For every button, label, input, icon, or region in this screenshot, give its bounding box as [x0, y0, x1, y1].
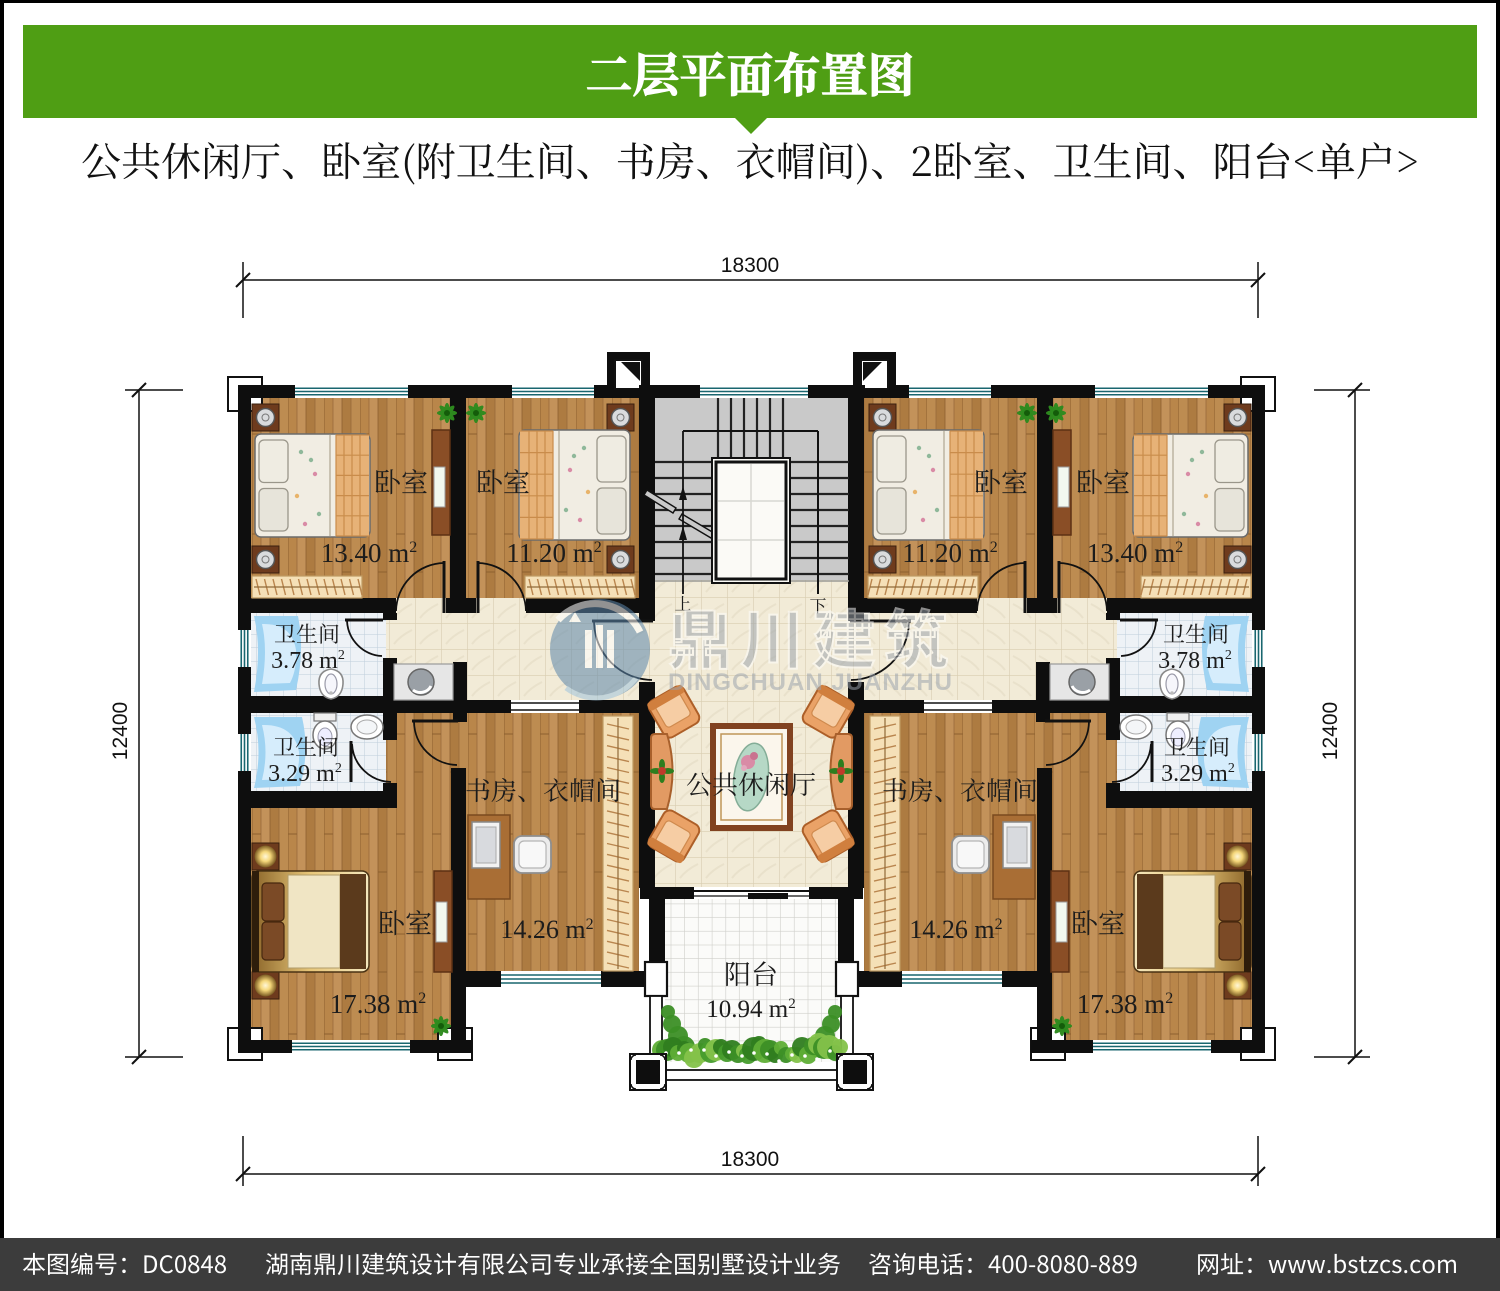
svg-text:12400: 12400 [1319, 702, 1342, 760]
svg-text:13.40 m2: 13.40 m2 [321, 538, 418, 568]
svg-text:11.20 m2: 11.20 m2 [902, 538, 998, 568]
svg-text:18300: 18300 [721, 254, 779, 277]
svg-text:17.38 m2: 17.38 m2 [1077, 989, 1174, 1019]
svg-text:14.26 m2: 14.26 m2 [909, 915, 1002, 944]
svg-text:3.29 m2: 3.29 m2 [1161, 761, 1235, 787]
svg-text:14.26 m2: 14.26 m2 [500, 915, 593, 944]
svg-text:12400: 12400 [109, 702, 132, 760]
svg-text:13.40 m2: 13.40 m2 [1087, 538, 1184, 568]
svg-text:10.94 m2: 10.94 m2 [706, 996, 795, 1023]
svg-text:3.78 m2: 3.78 m2 [1158, 648, 1232, 674]
svg-text:3.78 m2: 3.78 m2 [271, 648, 345, 674]
svg-text:DINGCHUAN JUANZHU: DINGCHUAN JUANZHU [668, 669, 953, 696]
svg-text:18300: 18300 [721, 1148, 779, 1171]
svg-text:11.20 m2: 11.20 m2 [506, 538, 602, 568]
svg-text:17.38 m2: 17.38 m2 [330, 989, 427, 1019]
svg-text:3.29 m2: 3.29 m2 [268, 761, 342, 787]
